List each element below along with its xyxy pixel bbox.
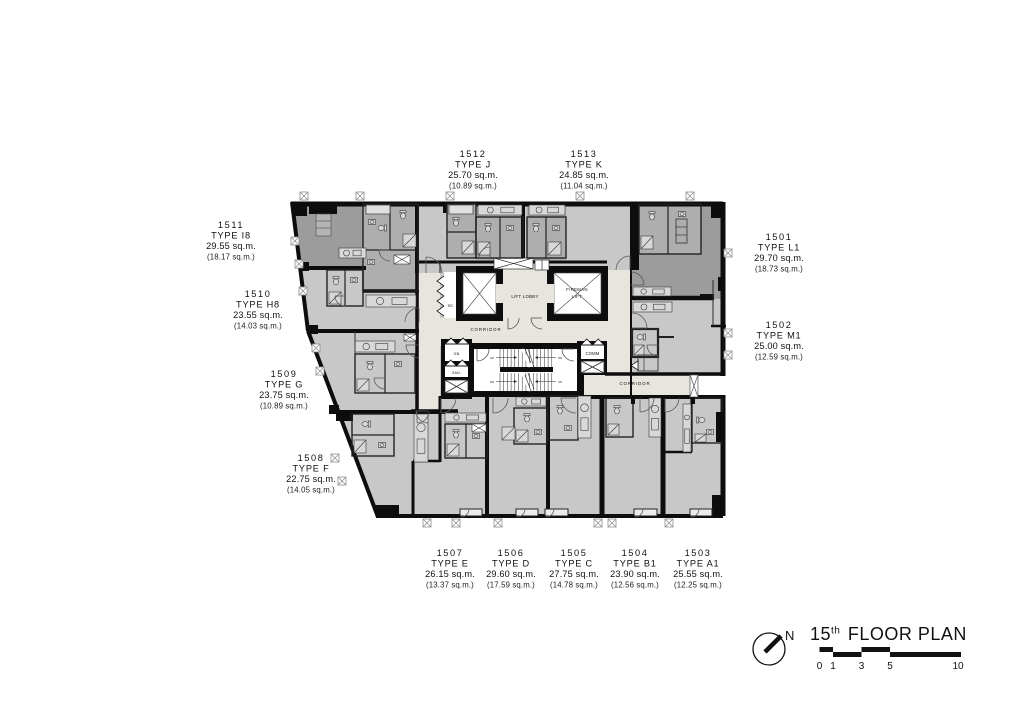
svg-text:(13.37 sq.m.): (13.37 sq.m.) xyxy=(426,581,474,590)
svg-text:(11.04 sq.m.): (11.04 sq.m.) xyxy=(560,182,608,191)
svg-text:LIFT LOBBY: LIFT LOBBY xyxy=(511,294,538,299)
svg-text:1506: 1506 xyxy=(498,548,525,558)
svg-text:SAN.: SAN. xyxy=(452,371,461,375)
svg-text:25.00 sq.m.: 25.00 sq.m. xyxy=(754,341,804,351)
svg-text:FIREMAN: FIREMAN xyxy=(566,287,587,292)
svg-text:29.55 sq.m.: 29.55 sq.m. xyxy=(206,241,256,251)
svg-text:22.75 sq.m.: 22.75 sq.m. xyxy=(286,474,336,484)
svg-text:(17.59 sq.m.): (17.59 sq.m.) xyxy=(487,581,535,590)
svg-text:29.60 sq.m.: 29.60 sq.m. xyxy=(486,569,536,579)
svg-text:LIFT: LIFT xyxy=(572,294,582,299)
svg-text:(18.73 sq.m.): (18.73 sq.m.) xyxy=(755,265,803,274)
svg-text:TYPE F: TYPE F xyxy=(293,464,330,474)
svg-text:(18.17 sq.m.): (18.17 sq.m.) xyxy=(207,253,255,262)
svg-text:(12.59 sq.m.): (12.59 sq.m.) xyxy=(755,353,803,362)
svg-text:COMM: COMM xyxy=(586,351,600,356)
svg-text:1511: 1511 xyxy=(218,220,244,230)
svg-text:5: 5 xyxy=(887,661,893,672)
svg-text:UP: UP xyxy=(558,380,562,384)
svg-text:UP: UP xyxy=(490,356,494,360)
svg-text:1505: 1505 xyxy=(561,548,588,558)
svg-text:TYPE L1: TYPE L1 xyxy=(758,243,800,253)
svg-text:27.75 sq.m.: 27.75 sq.m. xyxy=(549,569,599,579)
svg-text:EE.: EE. xyxy=(448,304,455,308)
svg-text:TYPE I8: TYPE I8 xyxy=(211,231,251,241)
svg-text:CORRIDOR: CORRIDOR xyxy=(619,381,650,386)
svg-text:(10.89 sq.m.): (10.89 sq.m.) xyxy=(260,402,308,411)
svg-text:TYPE A1: TYPE A1 xyxy=(677,559,720,569)
svg-text:1507: 1507 xyxy=(437,548,464,558)
svg-text:TYPE M1: TYPE M1 xyxy=(757,331,802,341)
svg-text:23.90 sq.m.: 23.90 sq.m. xyxy=(610,569,660,579)
svg-text:TYPE B1: TYPE B1 xyxy=(613,559,656,569)
svg-text:(14.05 sq.m.): (14.05 sq.m.) xyxy=(287,486,335,495)
svg-text:(10.89 sq.m.): (10.89 sq.m.) xyxy=(449,182,497,191)
svg-text:GB.: GB. xyxy=(454,352,461,356)
svg-text:26.15 sq.m.: 26.15 sq.m. xyxy=(425,569,475,579)
svg-text:1501: 1501 xyxy=(766,232,793,242)
svg-text:TYPE G: TYPE G xyxy=(265,380,304,390)
svg-text:0: 0 xyxy=(817,661,823,672)
svg-text:1508: 1508 xyxy=(298,453,325,463)
svg-text:TYPE K: TYPE K xyxy=(565,160,603,170)
svg-text:25.70 sq.m.: 25.70 sq.m. xyxy=(448,170,498,180)
svg-text:DN: DN xyxy=(490,380,494,384)
svg-text:N: N xyxy=(785,628,795,643)
svg-text:TYPE C: TYPE C xyxy=(555,559,593,569)
svg-text:1503: 1503 xyxy=(685,548,712,558)
svg-text:1504: 1504 xyxy=(622,548,649,558)
svg-text:CORRIDOR: CORRIDOR xyxy=(470,327,501,332)
svg-text:1512: 1512 xyxy=(460,149,487,159)
svg-text:(12.25 sq.m.): (12.25 sq.m.) xyxy=(674,581,722,590)
svg-text:1513: 1513 xyxy=(571,149,598,159)
svg-text:(14.03 sq.m.): (14.03 sq.m.) xyxy=(234,322,282,331)
svg-text:29.70 sq.m.: 29.70 sq.m. xyxy=(754,253,804,263)
svg-text:1509: 1509 xyxy=(271,369,298,379)
svg-text:3: 3 xyxy=(859,661,865,672)
svg-text:TYPE E: TYPE E xyxy=(431,559,468,569)
svg-text:25.55 sq.m.: 25.55 sq.m. xyxy=(673,569,723,579)
svg-text:TYPE D: TYPE D xyxy=(492,559,530,569)
svg-text:1: 1 xyxy=(830,661,836,672)
svg-text:DN: DN xyxy=(558,356,562,360)
svg-text:23.55 sq.m.: 23.55 sq.m. xyxy=(233,310,283,320)
svg-text:23.75 sq.m.: 23.75 sq.m. xyxy=(259,390,309,400)
svg-text:TYPE H8: TYPE H8 xyxy=(236,300,280,310)
svg-text:10: 10 xyxy=(952,661,964,672)
svg-text:1510: 1510 xyxy=(245,289,272,299)
svg-text:(14.78 sq.m.): (14.78 sq.m.) xyxy=(550,581,598,590)
svg-text:24.85 sq.m.: 24.85 sq.m. xyxy=(559,170,609,180)
svg-text:TYPE J: TYPE J xyxy=(455,160,491,170)
svg-text:1502: 1502 xyxy=(766,320,793,330)
svg-text:(12.56 sq.m.): (12.56 sq.m.) xyxy=(611,581,659,590)
